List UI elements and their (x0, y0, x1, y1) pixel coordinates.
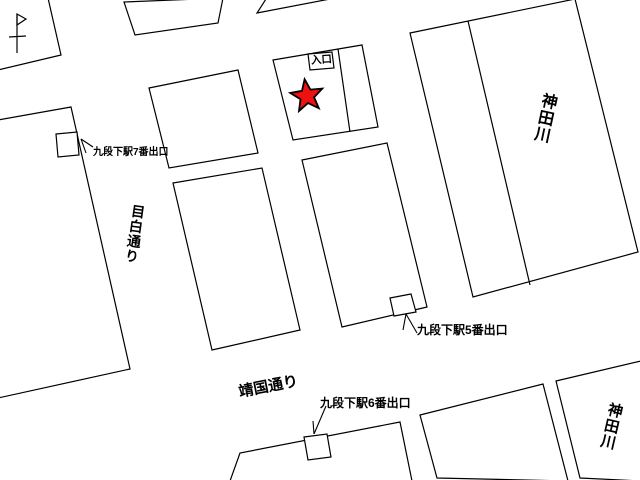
kanda-river-lower (556, 361, 640, 480)
kanda-river-upper (410, 0, 638, 297)
exit6-arrow (313, 406, 326, 434)
exit6-label: 九段下駅6番出口 (320, 397, 411, 410)
exit5-square (390, 294, 416, 316)
exit7-square (56, 132, 79, 157)
exit6-square (304, 434, 331, 460)
exit7-arrow (81, 139, 93, 153)
building-top-center (124, 0, 223, 35)
exit5-arrow (403, 314, 417, 333)
building-top-right-corner (257, 0, 330, 13)
building-top-left (0, 0, 61, 70)
exit7-label: 九段下駅7番出口 (93, 148, 169, 159)
building-bottom-right (420, 384, 568, 480)
entrance-label: 入口 (310, 54, 334, 67)
exit5-label: 九段下駅5番出口 (417, 324, 508, 337)
building-center-left (173, 168, 300, 350)
access-map: 入口 九段下駅7番出口 九段下駅5番出口 九段下駅6番出口 目白通り 靖国通り … (0, 0, 640, 480)
